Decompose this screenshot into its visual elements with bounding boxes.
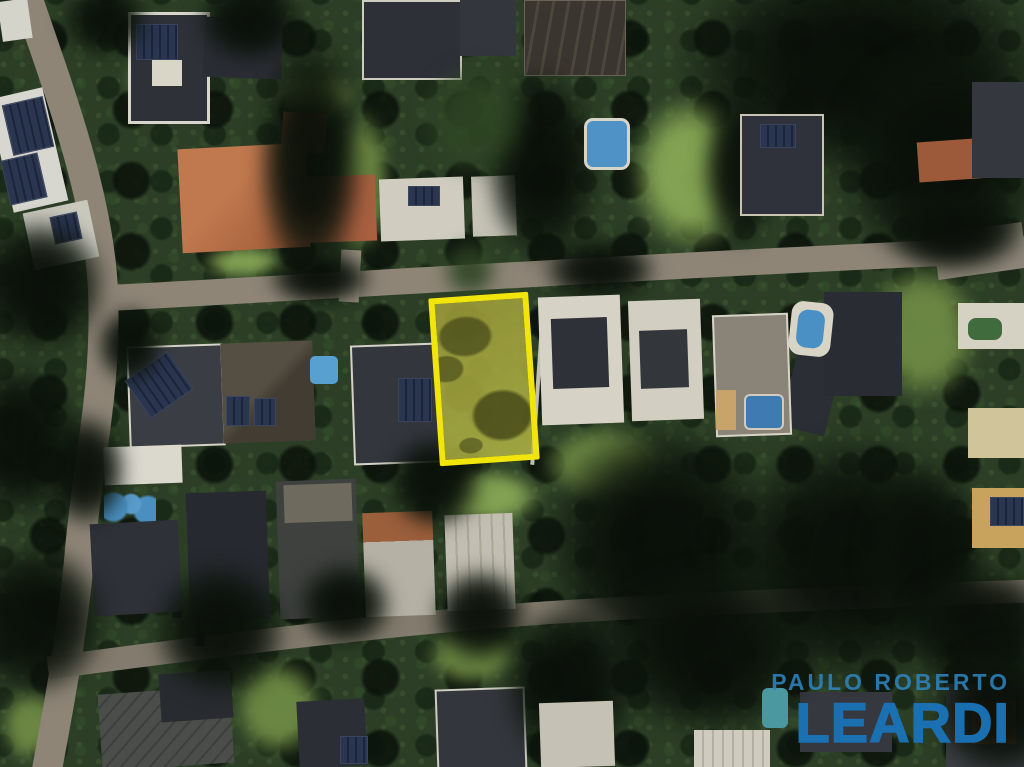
solar-panel bbox=[990, 497, 1024, 526]
solar-panel bbox=[340, 736, 368, 764]
tree-canopy bbox=[295, 560, 395, 650]
house-roof bbox=[639, 329, 689, 389]
solar-panel bbox=[760, 124, 796, 148]
house-roof bbox=[460, 0, 516, 56]
swimming-pool bbox=[795, 309, 826, 350]
house-roof bbox=[539, 701, 615, 767]
tree-canopy bbox=[265, 248, 375, 308]
swimming-pool bbox=[968, 318, 1002, 340]
tree-canopy bbox=[150, 560, 290, 700]
tree-canopy bbox=[880, 185, 1024, 275]
aerial-photo: PAULO ROBERTO LEARDI bbox=[0, 0, 1024, 767]
house-roof bbox=[551, 317, 609, 389]
house-roof bbox=[824, 292, 902, 396]
solar-panel bbox=[254, 398, 276, 426]
house-roof bbox=[972, 82, 1024, 178]
house-roof bbox=[694, 730, 770, 767]
tree-canopy bbox=[95, 305, 165, 385]
swimming-pool bbox=[584, 118, 630, 170]
highlighted-lot-boundary bbox=[428, 292, 539, 467]
tree-canopy bbox=[40, 410, 130, 530]
house-roof bbox=[968, 408, 1024, 458]
swimming-pool bbox=[744, 394, 784, 430]
house-roof bbox=[220, 340, 315, 443]
solar-panel bbox=[398, 378, 432, 422]
brand-logo-text: LEARDI bbox=[771, 697, 1010, 749]
solar-panel bbox=[226, 396, 250, 426]
swimming-pool bbox=[310, 356, 338, 384]
brand-watermark: PAULO ROBERTO LEARDI bbox=[771, 669, 1010, 749]
house-roof bbox=[0, 0, 33, 42]
shrub-canopy bbox=[440, 240, 500, 300]
solar-panel bbox=[408, 186, 440, 206]
rooftop-structure bbox=[152, 60, 182, 86]
wood-deck bbox=[716, 390, 736, 430]
house-roof bbox=[524, 0, 626, 76]
house-roof bbox=[283, 483, 352, 523]
shrub-canopy bbox=[420, 60, 530, 180]
